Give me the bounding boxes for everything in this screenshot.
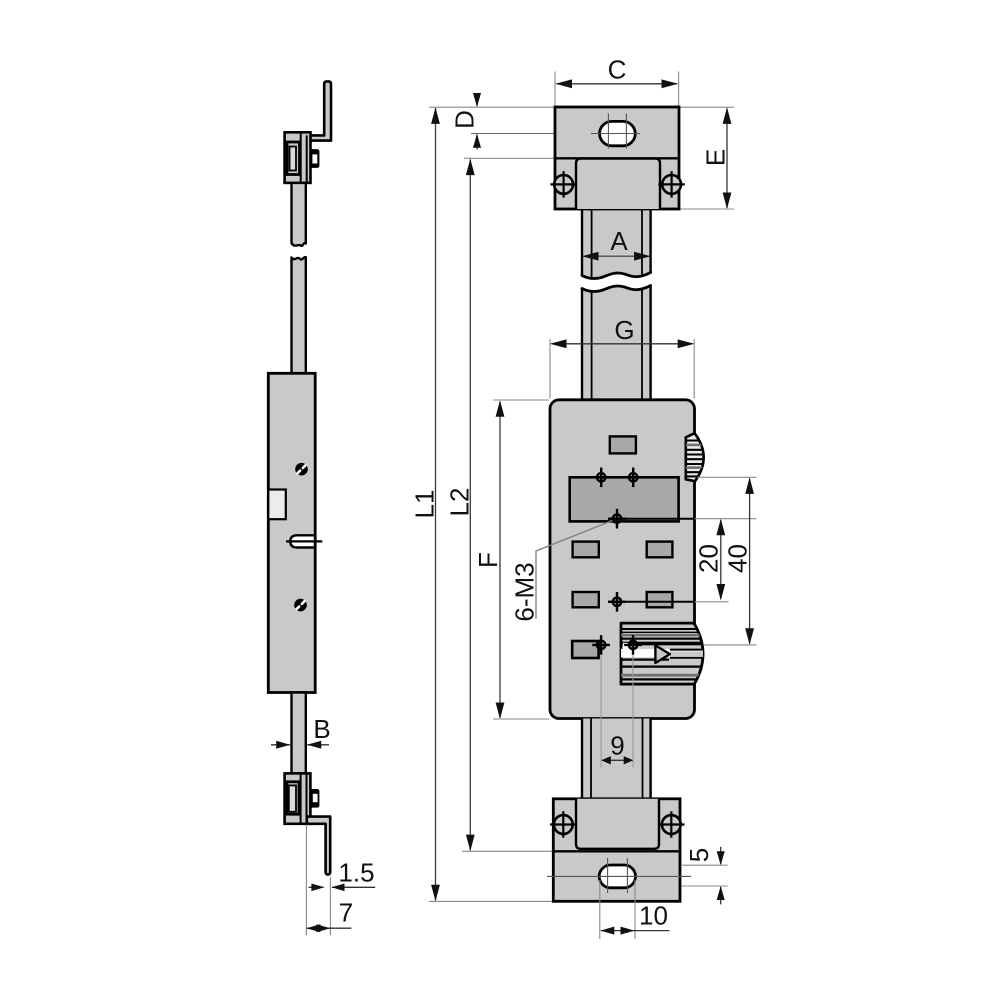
- svg-text:F: F: [473, 552, 503, 568]
- svg-text:G: G: [614, 315, 634, 345]
- svg-text:E: E: [701, 149, 731, 166]
- svg-text:C: C: [608, 55, 627, 85]
- svg-text:L2: L2: [444, 488, 474, 517]
- svg-text:6-M3: 6-M3: [510, 562, 540, 621]
- svg-text:40: 40: [723, 544, 753, 573]
- svg-text:D: D: [450, 110, 480, 129]
- svg-text:B: B: [313, 714, 330, 744]
- svg-text:20: 20: [694, 544, 724, 573]
- svg-text:10: 10: [639, 901, 668, 931]
- svg-text:L1: L1: [410, 490, 440, 519]
- svg-text:9: 9: [610, 731, 624, 761]
- svg-text:1.5: 1.5: [338, 858, 374, 888]
- svg-text:5: 5: [684, 848, 714, 862]
- svg-text:7: 7: [339, 898, 353, 928]
- svg-text:A: A: [610, 226, 628, 256]
